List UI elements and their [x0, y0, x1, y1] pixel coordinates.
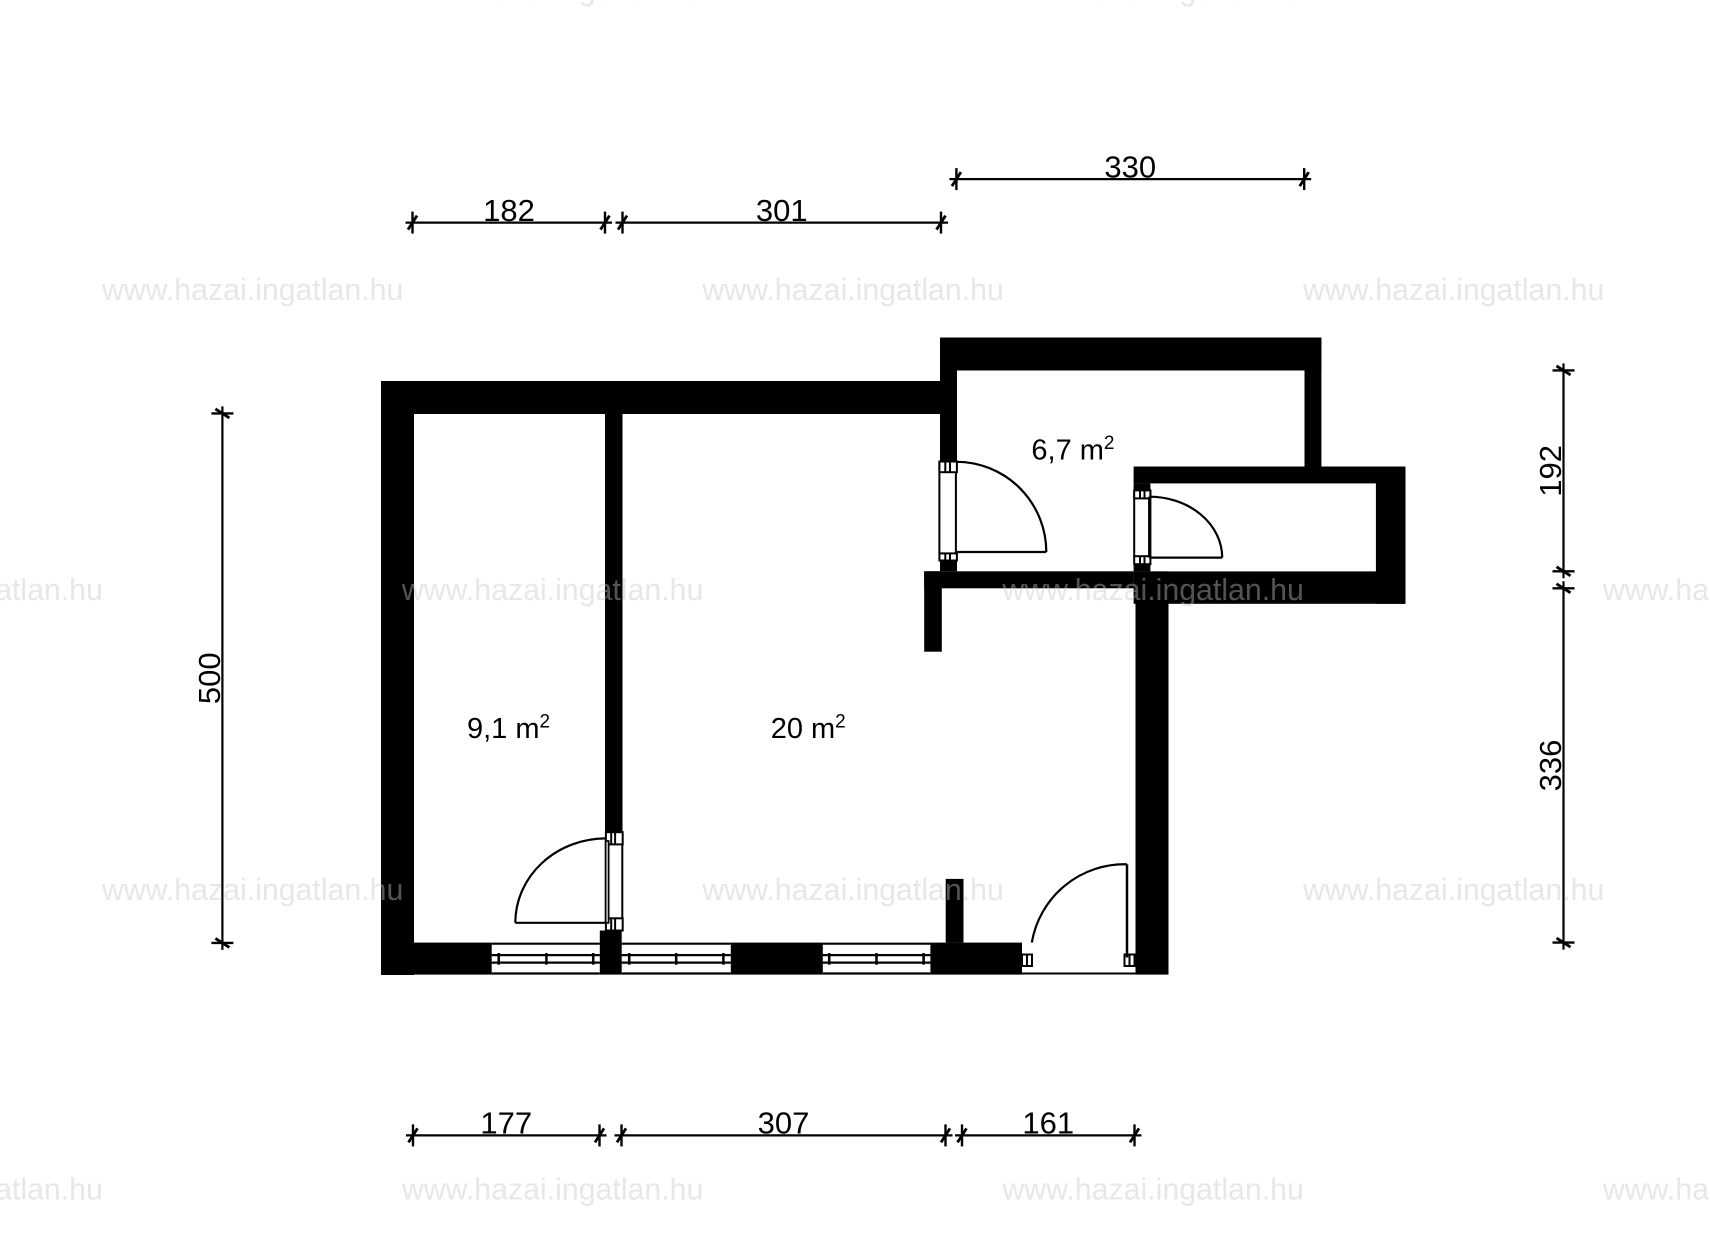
svg-text:336: 336: [1533, 740, 1568, 792]
svg-text:www.hazai.ingatlan.hu: www.hazai.ingatlan.hu: [1302, 874, 1604, 907]
svg-text:9,1 m2: 9,1 m2: [467, 712, 550, 746]
svg-text:6,7 m2: 6,7 m2: [1031, 433, 1114, 467]
svg-text:301: 301: [756, 193, 808, 228]
svg-text:182: 182: [483, 193, 535, 228]
svg-text:20 m2: 20 m2: [771, 712, 846, 746]
svg-text:www.hazai.ingatlan.hu: www.hazai.ingatlan.hu: [0, 574, 103, 607]
svg-text:www.hazai.ingatlan.hu: www.hazai.ingatlan.hu: [701, 874, 1003, 907]
svg-text:www.hazai.ingatlan.hu: www.hazai.ingatlan.hu: [401, 0, 703, 7]
svg-text:www.hazai.ingatlan.hu: www.hazai.ingatlan.hu: [101, 274, 403, 307]
svg-text:www.hazai.ingatlan.hu: www.hazai.ingatlan.hu: [1001, 574, 1303, 607]
svg-text:www.hazai.ingatlan.hu: www.hazai.ingatlan.hu: [1001, 0, 1303, 7]
svg-text:www.hazai.ingatlan.hu: www.hazai.ingatlan.hu: [1001, 1174, 1303, 1207]
svg-text:330: 330: [1104, 149, 1156, 184]
svg-text:www.hazai.ingatlan.hu: www.hazai.ingatlan.hu: [701, 274, 1003, 307]
svg-text:www.hazai.ingatlan.hu: www.hazai.ingatlan.hu: [101, 874, 403, 907]
svg-text:www.hazai.ingatlan.hu: www.hazai.ingatlan.hu: [1302, 274, 1604, 307]
svg-text:307: 307: [758, 1106, 810, 1141]
svg-text:www.hazai.ingatlan.hu: www.hazai.ingatlan.hu: [1602, 1174, 1710, 1207]
svg-text:500: 500: [192, 652, 227, 704]
svg-text:192: 192: [1533, 445, 1568, 497]
svg-text:161: 161: [1022, 1106, 1074, 1141]
svg-text:www.hazai.ingatlan.hu: www.hazai.ingatlan.hu: [401, 574, 703, 607]
svg-text:177: 177: [480, 1106, 532, 1141]
svg-text:www.hazai.ingatlan.hu: www.hazai.ingatlan.hu: [1602, 574, 1710, 607]
svg-text:www.hazai.ingatlan.hu: www.hazai.ingatlan.hu: [0, 1174, 103, 1207]
svg-text:www.hazai.ingatlan.hu: www.hazai.ingatlan.hu: [401, 1174, 703, 1207]
